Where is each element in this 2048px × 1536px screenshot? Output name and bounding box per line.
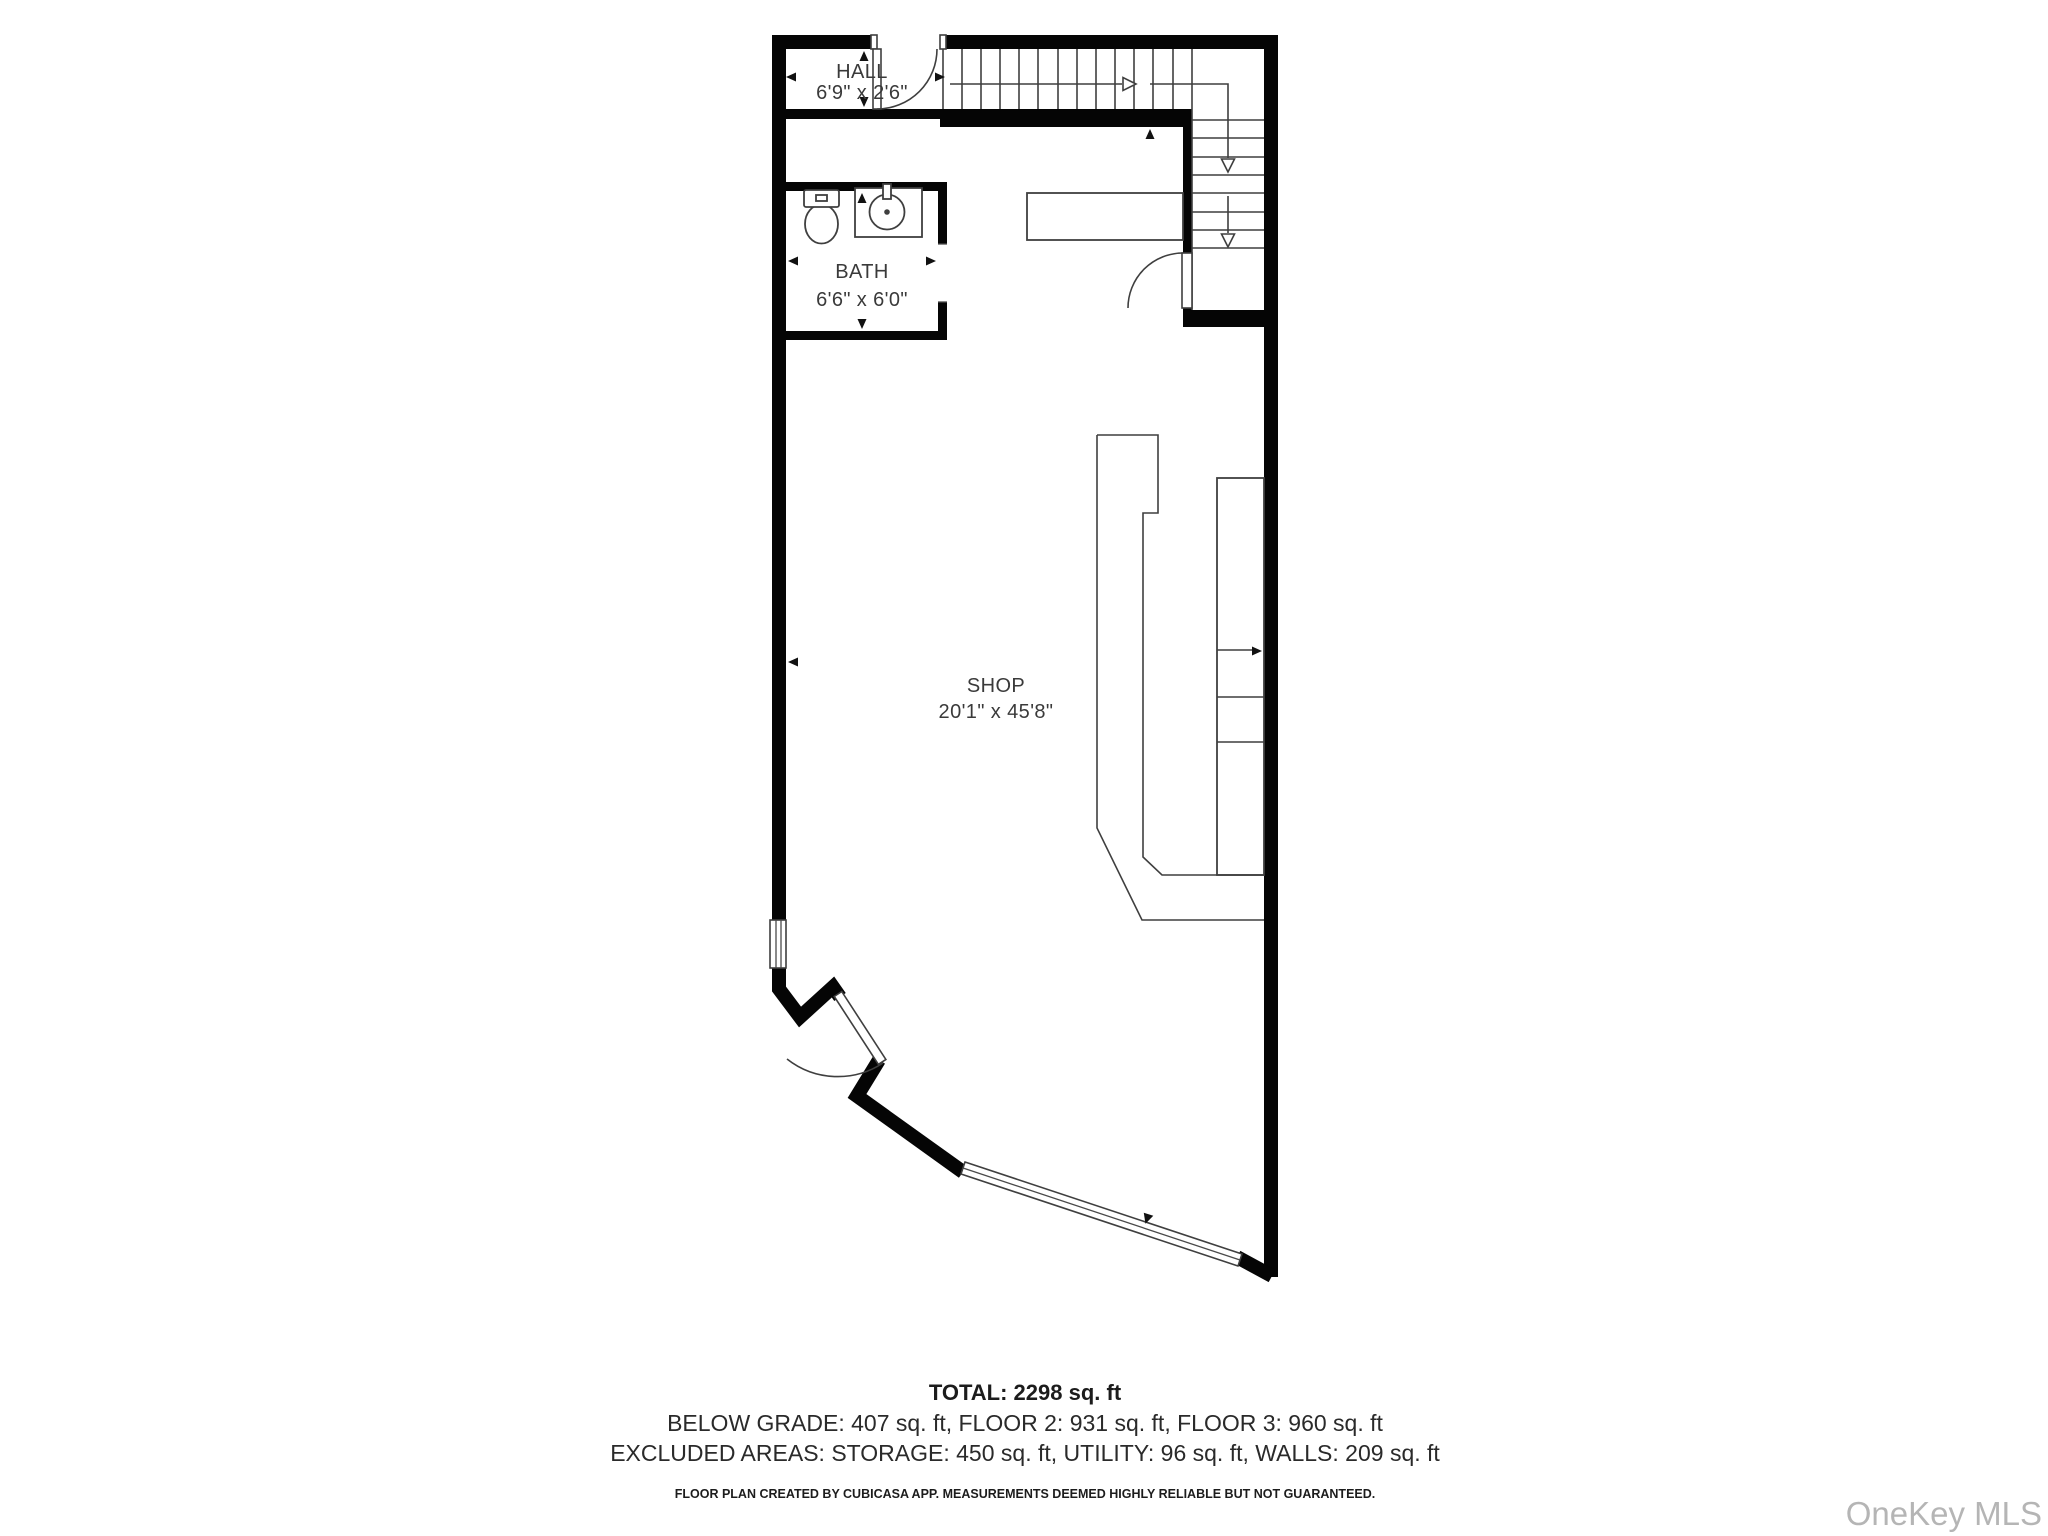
bath-doorway	[938, 244, 947, 302]
walls	[772, 35, 1278, 1277]
sink-faucet	[883, 184, 891, 199]
door-jamb	[940, 35, 946, 49]
left-window-frame	[770, 920, 786, 968]
shelf-outline	[1217, 478, 1264, 875]
stairs-bottom-wall	[940, 109, 1192, 127]
storefront-window-pane-line	[963, 1168, 1240, 1260]
door-swing-arc	[1128, 253, 1183, 308]
door-jamb	[871, 35, 877, 49]
measure-arrow-up-icon	[1146, 129, 1155, 139]
hall-bottom-wall	[786, 109, 940, 119]
entrance-wall-upper-zigzag	[779, 968, 840, 1017]
left-wall	[772, 35, 786, 920]
stairwell-left-wall	[1183, 127, 1192, 253]
total-area-text: TOTAL: 2298 sq. ft	[929, 1380, 1122, 1405]
measure-arrow-left-icon	[786, 73, 796, 82]
excluded-area-text: EXCLUDED AREAS: STORAGE: 450 sq. ft, UTI…	[610, 1440, 1440, 1466]
staircase	[943, 49, 1264, 310]
doors	[787, 35, 1192, 1077]
right-wall-shelving	[1217, 478, 1264, 875]
top-wall-right	[940, 35, 1278, 49]
stairs-upper-run	[943, 49, 1173, 109]
stair-arrow-down-icon	[1222, 159, 1235, 172]
counter-near-stairs	[1027, 193, 1183, 240]
disclaimer-text: FLOOR PLAN CREATED BY CUBICASA APP. MEAS…	[675, 1487, 1376, 1501]
storefront-window	[961, 1162, 1242, 1266]
floors-area-text: BELOW GRADE: 407 sq. ft, FLOOR 2: 931 sq…	[667, 1410, 1383, 1436]
room-labels: HALL 6'9" x 2'6" BATH 6'6" x 6'0" SHOP 2…	[816, 61, 1053, 723]
sink-drain	[884, 209, 890, 215]
toilet-icon	[804, 190, 839, 244]
bath-label: BATH	[835, 261, 888, 283]
shop-label: SHOP	[967, 675, 1025, 697]
door-leaf	[1182, 253, 1192, 308]
left-window	[770, 920, 786, 968]
measure-arrow-right-icon	[926, 257, 936, 266]
stairwell-bottom-wall	[1183, 310, 1264, 327]
windows	[770, 920, 1242, 1266]
toilet-bowl	[805, 205, 838, 244]
floor-plan-drawing: HALL 6'9" x 2'6" BATH 6'6" x 6'0" SHOP 2…	[0, 0, 2048, 1536]
stair-arrow-down-icon	[1222, 234, 1235, 247]
bath-bottom-wall	[786, 331, 947, 340]
hall-label: HALL	[836, 61, 888, 83]
measure-arrow-down-icon	[858, 319, 867, 329]
shop-dimensions: 20'1" x 45'8"	[939, 701, 1054, 723]
onekey-mls-watermark: OneKey MLS	[1846, 1495, 2042, 1532]
bath-dimensions: 6'6" x 6'0"	[816, 289, 908, 311]
right-wall	[1264, 35, 1278, 1277]
sink-icon	[855, 184, 922, 237]
floor-plan-page: HALL 6'9" x 2'6" BATH 6'6" x 6'0" SHOP 2…	[0, 0, 2048, 1536]
bath-right-wall-upper	[938, 182, 947, 244]
measure-arrow-left-icon	[788, 257, 798, 266]
bath-fixtures	[804, 184, 922, 244]
hall-dimensions: 6'9" x 2'6"	[816, 82, 908, 104]
shop-fixtures	[1027, 193, 1264, 920]
area-summary: TOTAL: 2298 sq. ft BELOW GRADE: 407 sq. …	[610, 1380, 1440, 1501]
toilet-flush-button	[816, 195, 827, 201]
measure-arrow-up-icon	[860, 51, 869, 61]
stairwell-door	[1128, 253, 1192, 308]
top-wall-left	[772, 35, 877, 49]
measure-arrow-left-icon	[788, 658, 798, 667]
door-leaf	[834, 992, 886, 1065]
entrance-wall-lower-zigzag	[857, 1060, 963, 1172]
